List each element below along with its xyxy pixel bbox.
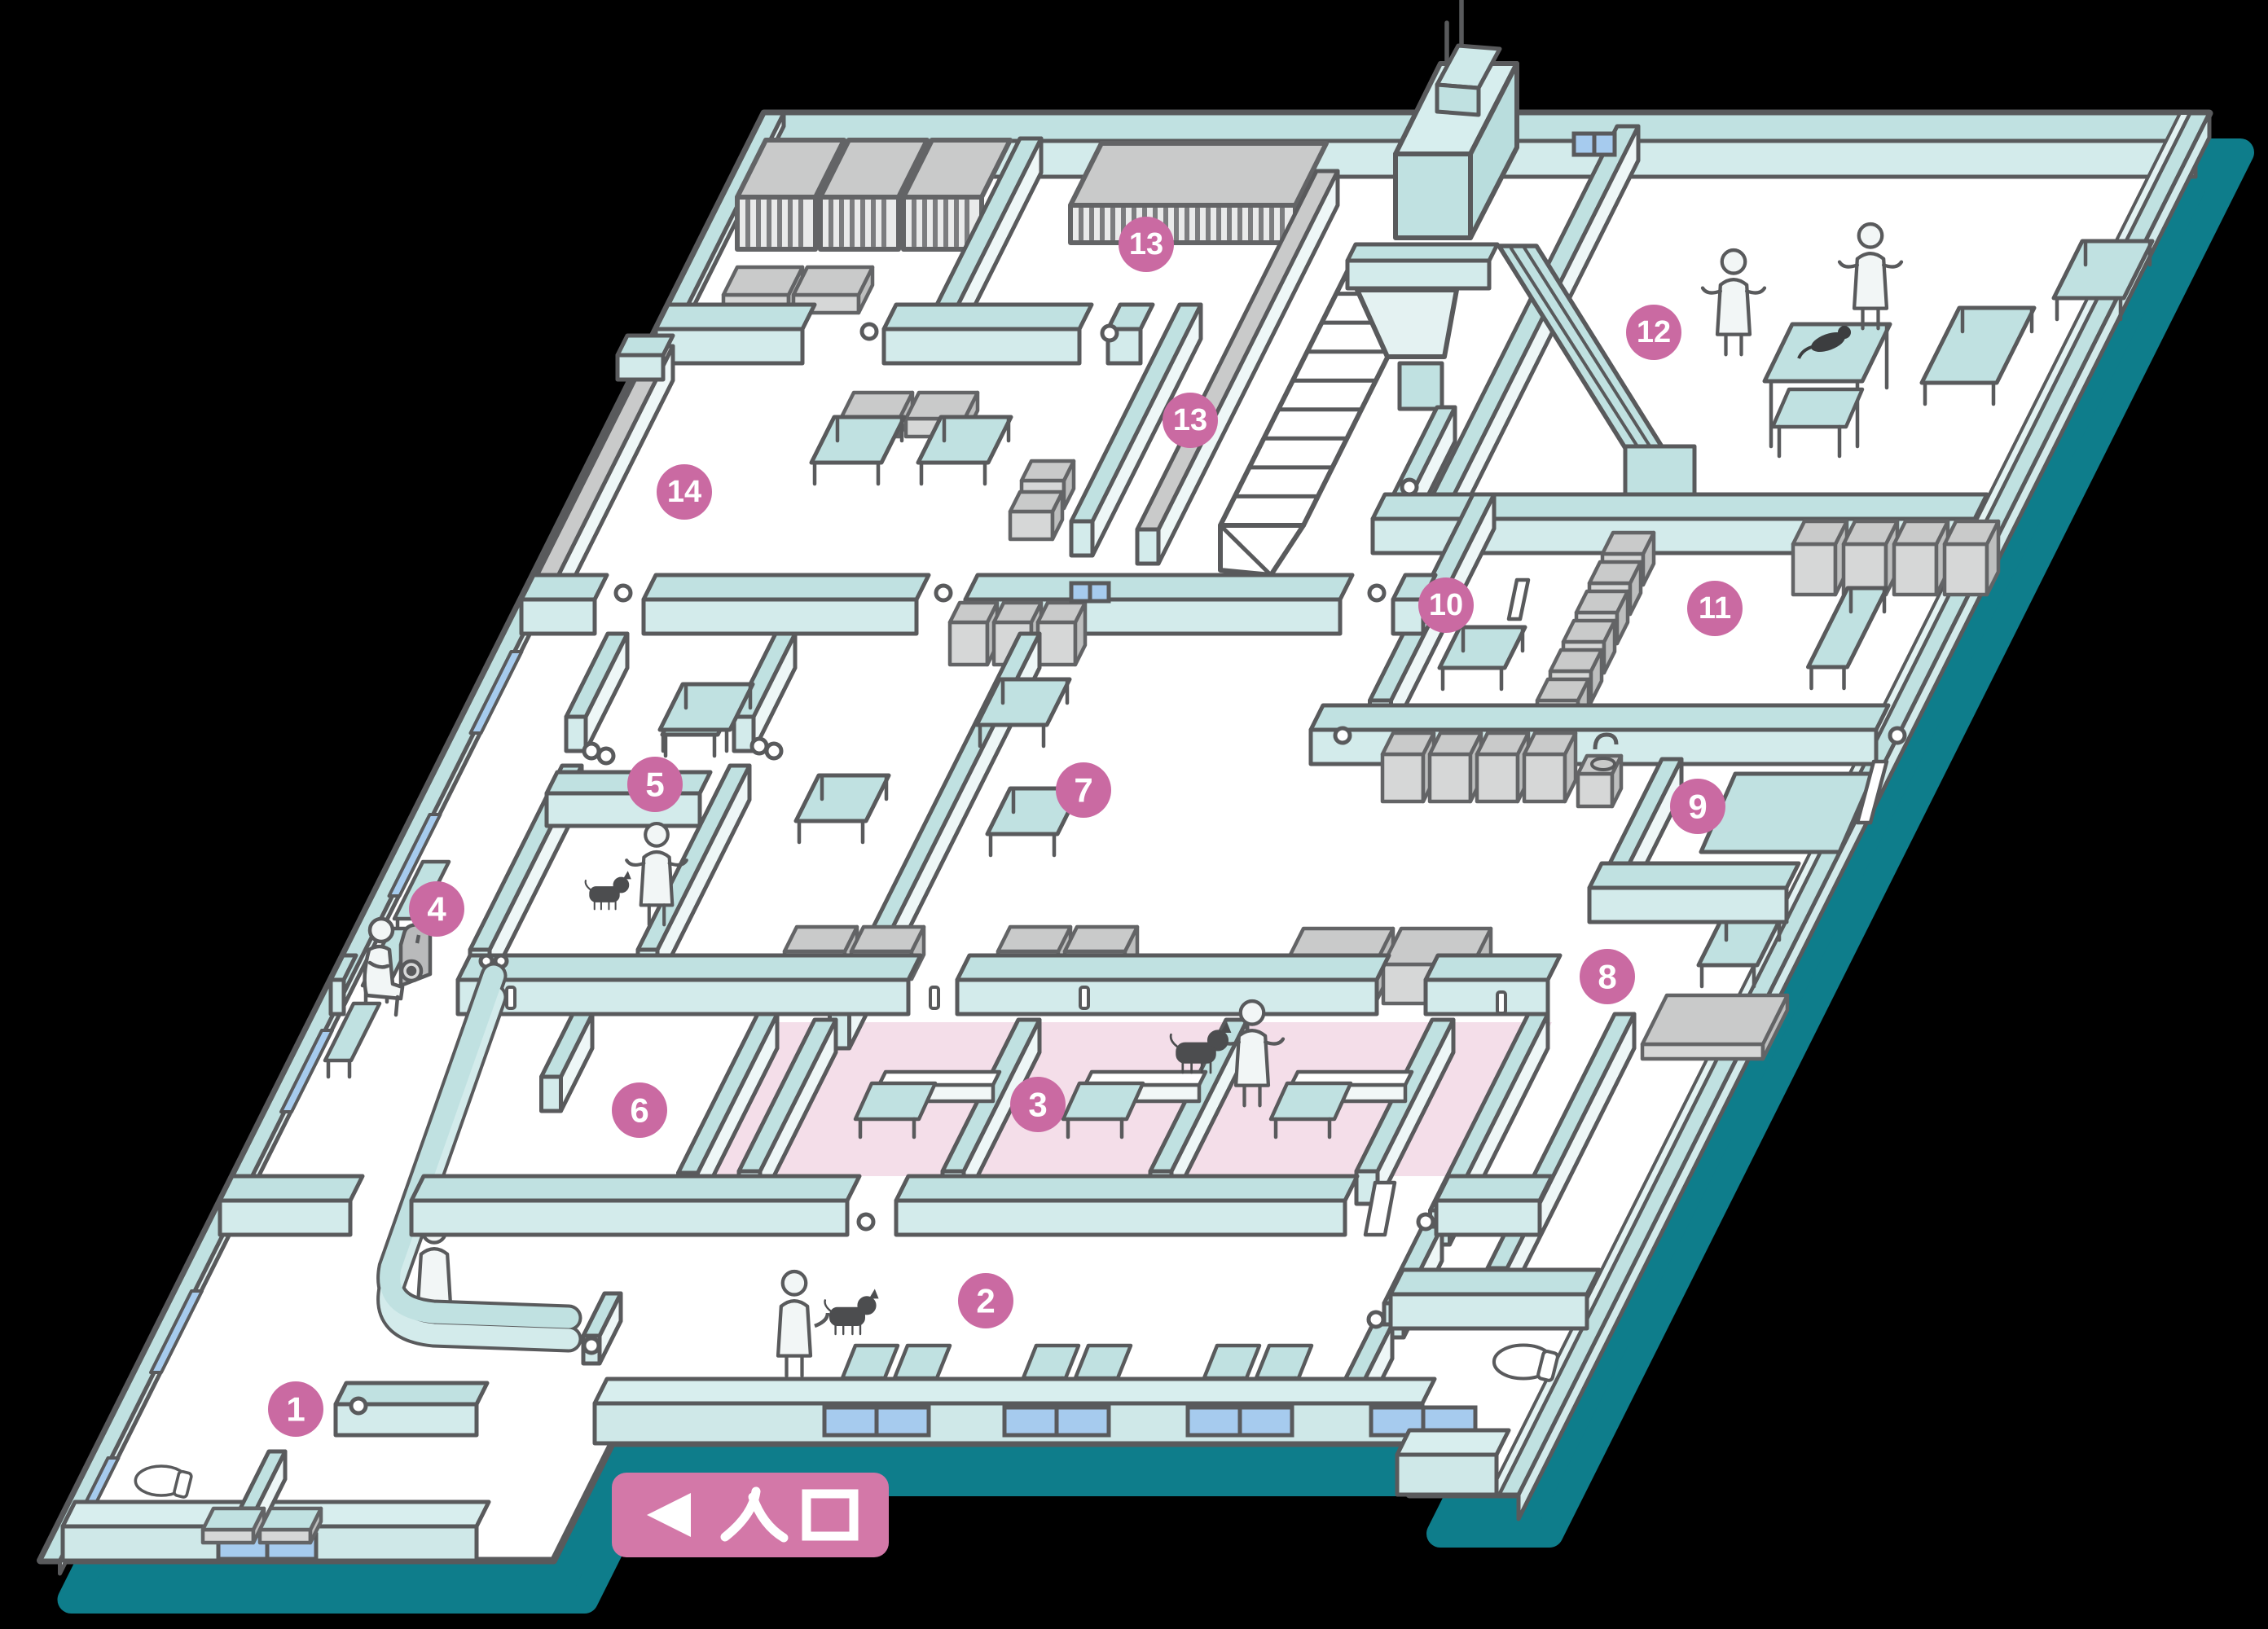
svg-text:3: 3	[1028, 1086, 1047, 1124]
svg-text:5: 5	[645, 766, 664, 804]
svg-text:1: 1	[286, 1390, 305, 1429]
svg-text:13: 13	[1129, 227, 1163, 261]
svg-text:9: 9	[1688, 788, 1707, 826]
svg-text:6: 6	[630, 1091, 648, 1130]
svg-text:2: 2	[976, 1282, 995, 1320]
svg-text:12: 12	[1637, 315, 1671, 349]
svg-text:10: 10	[1429, 588, 1463, 622]
svg-text:8: 8	[1598, 958, 1616, 996]
svg-text:13: 13	[1173, 403, 1207, 437]
svg-text:7: 7	[1074, 771, 1092, 810]
svg-text:14: 14	[667, 475, 701, 509]
svg-text:11: 11	[1699, 591, 1731, 626]
svg-text:4: 4	[427, 890, 446, 929]
